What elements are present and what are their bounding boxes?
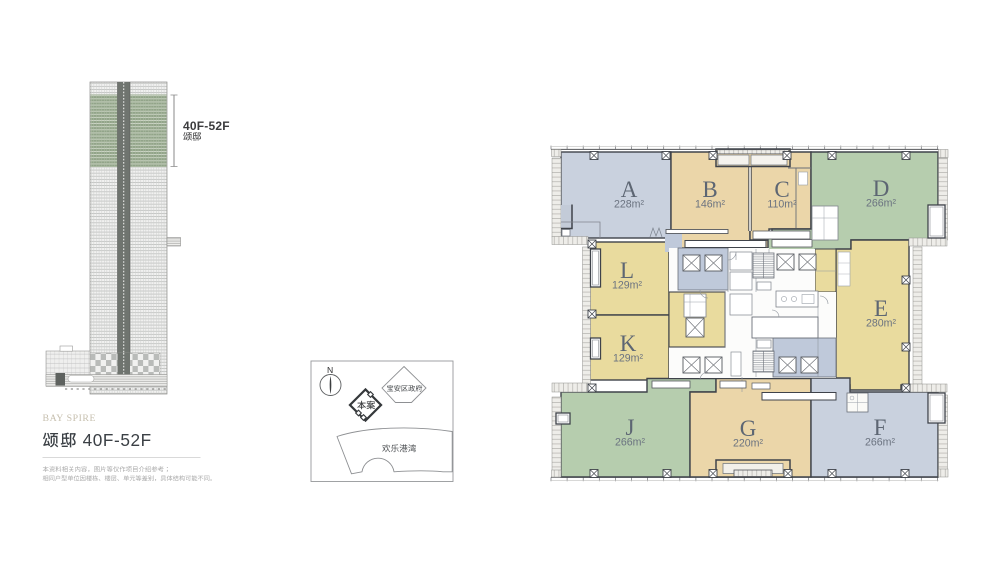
svg-text:280m²: 280m²: [866, 318, 896, 330]
svg-text:266m²: 266m²: [866, 198, 896, 210]
svg-text:40F-52F: 40F-52F: [83, 430, 152, 450]
svg-text:220m²: 220m²: [733, 438, 763, 450]
svg-text:40F-52F: 40F-52F: [183, 119, 230, 133]
svg-text:N: N: [327, 365, 333, 375]
svg-text:146m²: 146m²: [695, 199, 725, 211]
svg-text:BAY SPIRE: BAY SPIRE: [43, 413, 97, 424]
svg-text:110m²: 110m²: [767, 199, 797, 211]
svg-text:266m²: 266m²: [865, 437, 895, 449]
svg-text:129m²: 129m²: [613, 353, 643, 365]
svg-text:129m²: 129m²: [612, 280, 642, 292]
svg-text:266m²: 266m²: [615, 437, 645, 449]
svg-text:228m²: 228m²: [614, 199, 644, 211]
